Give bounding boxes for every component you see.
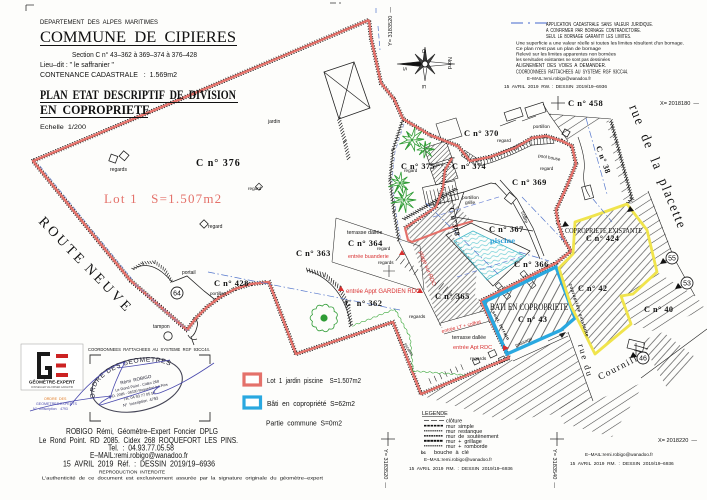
svg-text:regards: regards [409, 314, 426, 320]
svg-text:COORDONNEES RATTACHEES AU S: COORDONNEES RATTACHEES AU SYSTEME RGF 93… [516, 70, 628, 76]
svg-text:entrée Appt GARDIEN RDC: entrée Appt GARDIEN RDC [346, 289, 421, 295]
svg-text:regard: regard [404, 168, 418, 173]
svg-text:L'authenticité de ce docume: L'authenticité de ce document est exclus… [42, 476, 324, 482]
svg-text:C n° 376: C n° 376 [196, 158, 241, 169]
svg-text:PLAN ETAT DESCRIPTIF DE DI: PLAN ETAT DESCRIPTIF DE DIVISION [40, 88, 236, 102]
svg-text:Lot 1 S=1.507m2: Lot 1 S=1.507m2 [104, 191, 222, 206]
svg-text:ORDRE DES: ORDRE DES [44, 397, 67, 401]
svg-text:C n° 362: C n° 362 [345, 299, 382, 308]
svg-text:E–MAIL:remi.robigo@wanadoo.fr: E–MAIL:remi.robigo@wanadoo.fr [527, 76, 591, 82]
svg-text:Lot 1 jardin piscine S=1: Lot 1 jardin piscine S=1.507m2 [267, 376, 361, 385]
svg-text:C n° 363: C n° 363 [296, 249, 331, 258]
svg-text:15 AVRIL 2019 RM. : DESSI: 15 AVRIL 2019 RM. : DESSIN 2019/19–6936 [409, 466, 513, 472]
svg-text:C n° 367: C n° 367 [489, 225, 524, 234]
svg-text:COORDONNEES RATTACHEES AU S: COORDONNEES RATTACHEES AU SYSTEME RGF 93… [88, 347, 210, 353]
svg-text:regard: regard [540, 166, 554, 171]
svg-text:C n° 374: C n° 374 [452, 162, 486, 171]
svg-text:55: 55 [668, 255, 676, 262]
svg-text:entrée Apt RDC: entrée Apt RDC [453, 345, 492, 351]
svg-text:Bâti en copropriété S=62m2: Bâti en copropriété S=62m2 [267, 399, 355, 408]
svg-text:bc: bc [421, 450, 427, 455]
svg-text:Une superficie a une valeur ré: Une superficie a une valeur réelle si to… [516, 41, 684, 47]
svg-text:C n° 369: C n° 369 [512, 178, 547, 187]
svg-text:Echelle 1/200: Echelle 1/200 [40, 124, 86, 131]
svg-text:CONSEILLER VALORISER GARANTIR: CONSEILLER VALORISER GARANTIR [31, 386, 74, 389]
svg-text:terrasse dallée: terrasse dallée [452, 335, 486, 341]
svg-text:C n° 365: C n° 365 [435, 292, 470, 301]
svg-text:regard: regard [377, 246, 391, 251]
svg-text:regard: regard [208, 224, 223, 230]
svg-text:15 AVRIL 2019 Réf. : DESS: 15 AVRIL 2019 Réf. : DESSIN 2019/19–6936 [63, 460, 215, 469]
svg-text:REPRODUCTION INTERDITE: REPRODUCTION INTERDITE [99, 470, 165, 476]
svg-text:Lieu–dit : " le saffranier ": Lieu–dit : " le saffranier " [40, 62, 114, 69]
svg-text:Nord: Nord [446, 57, 452, 69]
svg-text:E–MAIL:remi.robigo@wanadoo.fr: E–MAIL:remi.robigo@wanadoo.fr [585, 452, 653, 457]
svg-text:GEOMETRES-EXPERTS: GEOMETRES-EXPERTS [36, 402, 77, 406]
svg-text:grille: grille [465, 200, 475, 206]
svg-text:ALIGNEMENT DES VOIES A DEM: ALIGNEMENT DES VOIES A DEMANDER. [516, 63, 606, 69]
svg-text:E–MAIL:remi.robigo@wanadoo.fr: E–MAIL:remi.robigo@wanadoo.fr [424, 457, 492, 462]
svg-text:S: S [401, 67, 407, 71]
svg-text:C n° 424: C n° 424 [586, 234, 619, 243]
svg-text:C n° 458: C n° 458 [568, 98, 603, 108]
svg-text:C n° 366: C n° 366 [514, 260, 549, 269]
svg-text:piscine: piscine [490, 237, 515, 245]
svg-text:regards: regards [110, 167, 127, 173]
svg-text:COPROPRIETE EXISTANTE: COPROPRIETE EXISTANTE [565, 227, 642, 235]
svg-text:C n° 370: C n° 370 [464, 129, 499, 138]
svg-text:portillon: portillon [210, 291, 227, 296]
svg-text:GÉOMÈTRE-EXPERT: GÉOMÈTRE-EXPERT [29, 378, 75, 385]
svg-text:LEGENDE: LEGENDE [422, 411, 448, 417]
svg-text:64: 64 [173, 290, 181, 297]
svg-text:bouche à clé: bouche à clé [434, 450, 469, 456]
svg-text:portail: portail [182, 270, 196, 276]
svg-text:Relevé sur les limites apparen: Relevé sur les limites apparentes non bo… [516, 52, 617, 58]
svg-text:15 AVRIL 2019 RW. : DESSIN: 15 AVRIL 2019 RW. : DESSIN 2019/19–6936 [504, 84, 607, 90]
svg-text:entrée buanderie: entrée buanderie [348, 254, 389, 260]
svg-text:tampon: tampon [153, 324, 170, 330]
svg-text:SEUL LE BORNAGE GARANTIT L: SEUL LE BORNAGE GARANTIT LES LIMITES. [546, 34, 631, 40]
svg-text:CONTENANCE CADASTRALE : 1.5: CONTENANCE CADASTRALE : 1.569m2 [40, 70, 177, 79]
svg-text:C n° 40: C n° 40 [644, 305, 674, 314]
svg-text:46: 46 [639, 355, 647, 362]
svg-text:Partie commune S=0m2: Partie commune S=0m2 [266, 419, 342, 428]
svg-text:X= 2018220 —: X= 2018220 — [658, 438, 697, 444]
svg-text:Section C n° 43–362 à 369–374: Section C n° 43–362 à 369–374 à 376–428 [72, 50, 197, 59]
svg-text:Y= 3183520 —: Y= 3183520 — [382, 449, 388, 488]
svg-text:COMMUNE DE CIPIERES: COMMUNE DE CIPIERES [40, 29, 236, 46]
svg-text:C n° 428: C n° 428 [214, 279, 249, 288]
svg-text:C n° 42: C n° 42 [578, 284, 608, 293]
svg-text:regard: regard [430, 162, 444, 167]
svg-text:ROBIGO Rémi, Géomètre–Expert: ROBIGO Rémi, Géomètre–Expert Foncier DPL… [66, 427, 218, 436]
svg-text:N° d'inscription 4793: N° d'inscription 4793 [33, 407, 68, 411]
svg-text:regards: regards [378, 260, 394, 265]
svg-text:O: O [420, 49, 426, 54]
svg-text:jardin: jardin [267, 119, 280, 125]
svg-text:regard: regard [497, 138, 511, 144]
svg-text:X= 2018180 —: X= 2018180 — [660, 101, 699, 107]
svg-text:terrasse dallée: terrasse dallée [347, 230, 382, 236]
svg-text:BATI EN COPROPRIETE: BATI EN COPROPRIETE [490, 302, 568, 312]
svg-text:15 AVRIL 2019 RM. : DESSI: 15 AVRIL 2019 RM. : DESSIN 2019/19–6936 [570, 461, 674, 467]
svg-text:DEPARTEMENT DES ALPES MARIT: DEPARTEMENT DES ALPES MARITIMES [40, 19, 159, 26]
svg-text:Y= 3183540 —: Y= 3183540 — [551, 449, 557, 488]
svg-text:regard: regard [248, 186, 262, 191]
svg-text:53: 53 [683, 280, 691, 287]
svg-text:E: E [420, 85, 426, 89]
svg-text:regards: regards [470, 356, 487, 362]
svg-text:EN COPROPRIETE: EN COPROPRIETE [40, 103, 150, 117]
svg-text:portillon: portillon [533, 124, 550, 130]
svg-text:Y= 3183520 —: Y= 3183520 — [388, 7, 394, 46]
svg-text:Ce plan n'est pas un plan de b: Ce plan n'est pas un plan de bornage [516, 46, 601, 52]
svg-text:C n° 43: C n° 43 [518, 315, 548, 324]
